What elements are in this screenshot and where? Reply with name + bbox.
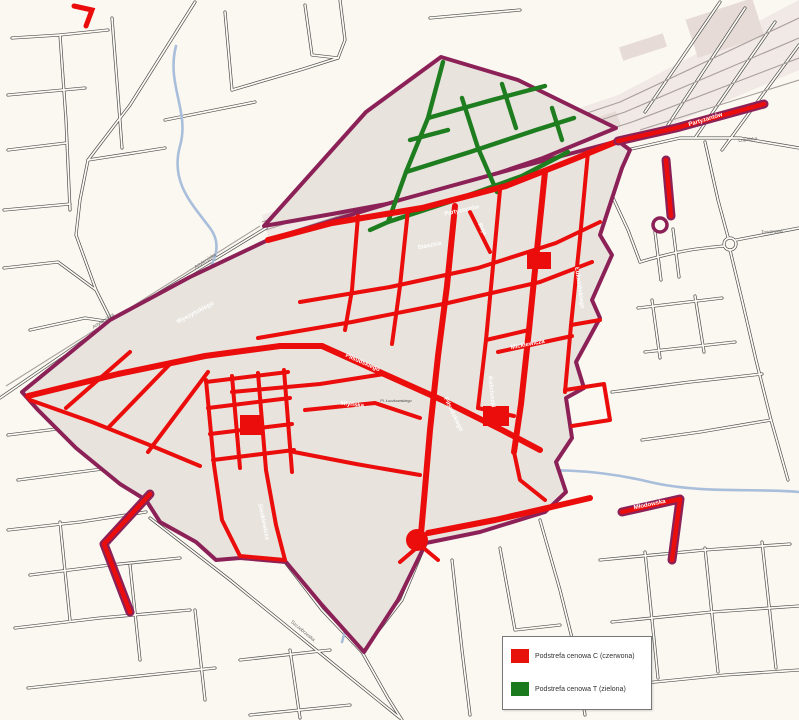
legend-item-zone-t: Podstrefa cenowa T (zielona)	[511, 675, 651, 703]
plaza-block	[483, 406, 509, 426]
legend: Podstrefa cenowa C (czerwona) Podstrefa …	[502, 636, 652, 710]
zone-t-color-swatch	[511, 682, 529, 696]
zone-c-color-swatch	[511, 649, 529, 663]
zone-c-label: Podstrefa cenowa C (czerwona)	[535, 653, 635, 660]
legend-item-zone-c: Podstrefa cenowa C (czerwona)	[511, 642, 651, 670]
map-screenshot: PartyzantówPartyzantówArtyleryjskaArtyle…	[0, 0, 799, 720]
zone-t-label: Podstrefa cenowa T (zielona)	[535, 686, 626, 693]
old-town-square	[240, 415, 262, 435]
city-map: PartyzantówPartyzantówArtyleryjskaArtyle…	[0, 0, 799, 720]
street-label: Pl. Łuczkowskiego	[380, 399, 411, 403]
plaza-block	[527, 252, 551, 269]
